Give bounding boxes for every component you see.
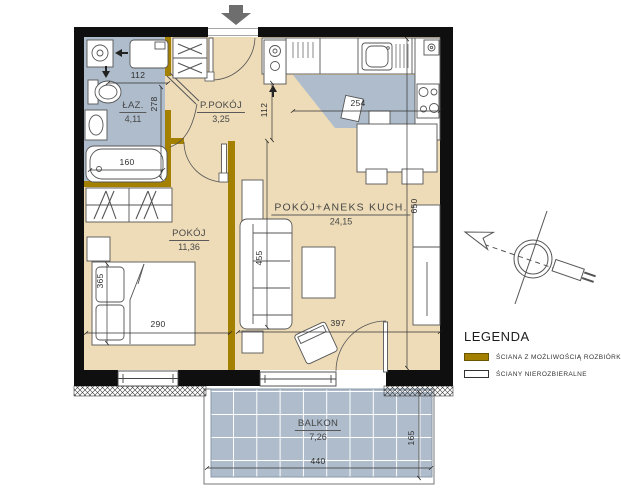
bed [92, 262, 195, 345]
pillow [96, 305, 124, 340]
hall-wardrobe [173, 38, 207, 78]
chair [366, 169, 387, 184]
floor-plan-drawing [0, 0, 621, 500]
floor-plan-page: ŁAZ. 4,11 P.POKÓJ 3,25 POKÓJ+ANEKS KUCH.… [0, 0, 621, 500]
pillow [96, 267, 124, 302]
washing-machine [87, 40, 113, 67]
entrance-arrow-icon [221, 5, 251, 25]
balcony-tiles [211, 389, 432, 477]
cabinet-detail [155, 42, 165, 49]
north-arrow-icon [465, 211, 597, 304]
living-wardrobe [413, 205, 440, 325]
stove [417, 84, 439, 118]
bedroom-window [118, 371, 178, 386]
side-table [242, 331, 263, 353]
kitchen-sink [362, 43, 392, 70]
chair [402, 169, 423, 184]
bedside-table [87, 237, 110, 261]
bedroom-wardrobe [86, 188, 172, 222]
living-window [260, 372, 336, 386]
toilet [88, 80, 121, 104]
dining-table [357, 124, 437, 172]
kitchen-counter [262, 38, 440, 74]
bathroom-sink [85, 110, 107, 140]
coffee-table [302, 247, 335, 298]
sofa [240, 219, 292, 329]
side-table [242, 180, 263, 222]
bathtub [86, 146, 167, 182]
balcony-area [204, 389, 434, 484]
entrance-opening [208, 29, 258, 36]
